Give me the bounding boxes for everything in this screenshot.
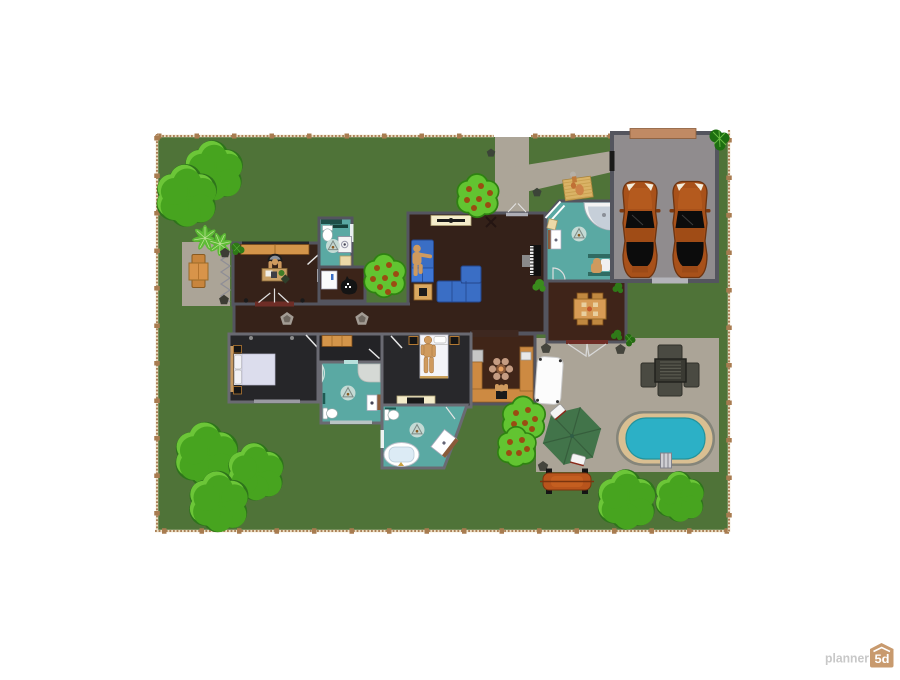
svg-text:planner: planner <box>825 652 869 666</box>
svg-text:5d: 5d <box>875 652 890 666</box>
